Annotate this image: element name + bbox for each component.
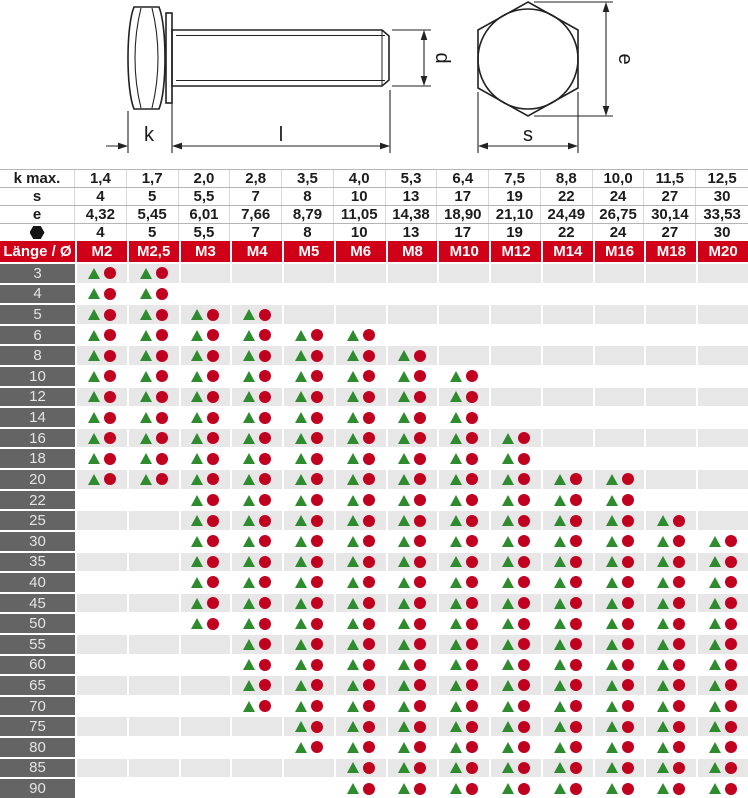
availability-cell (646, 470, 696, 489)
circle-marker-icon (466, 453, 478, 465)
circle-marker-icon (570, 556, 582, 568)
column-header: M4 (232, 241, 282, 262)
circle-marker-icon (207, 473, 219, 485)
availability-cell (543, 635, 593, 654)
triangle-marker-icon (243, 474, 255, 485)
triangle-marker-icon (502, 474, 514, 485)
circle-marker-icon (466, 432, 478, 444)
triangle-marker-icon (709, 598, 721, 609)
table-row: 8 (0, 346, 748, 365)
triangle-marker-icon (606, 701, 618, 712)
triangle-marker-icon (347, 762, 359, 773)
triangle-marker-icon (140, 391, 152, 402)
availability-cell (77, 449, 127, 468)
availability-cell (181, 326, 231, 345)
triangle-marker-icon (243, 618, 255, 629)
triangle-marker-icon (347, 371, 359, 382)
availability-cell (129, 573, 179, 592)
availability-cell (232, 779, 282, 798)
availability-cell (284, 553, 334, 572)
availability-cell (491, 491, 541, 510)
availability-cell (77, 553, 127, 572)
availability-cell (284, 326, 334, 345)
circle-marker-icon (673, 597, 685, 609)
circle-marker-icon (725, 638, 737, 650)
availability-cell (232, 532, 282, 551)
circle-marker-icon (622, 556, 634, 568)
availability-cell (388, 594, 438, 613)
circle-marker-icon (414, 391, 426, 403)
triangle-marker-icon (450, 371, 462, 382)
triangle-marker-icon (502, 618, 514, 629)
availability-cell (181, 656, 231, 675)
availability-cell (543, 697, 593, 716)
triangle-marker-icon (243, 433, 255, 444)
length-row-header: 12 (0, 388, 75, 407)
availability-cell (439, 553, 489, 572)
triangle-marker-icon (295, 701, 307, 712)
circle-marker-icon (673, 783, 685, 795)
availability-cell (181, 346, 231, 365)
triangle-marker-icon (657, 598, 669, 609)
triangle-marker-icon (450, 598, 462, 609)
circle-marker-icon (622, 473, 634, 485)
availability-cell (439, 408, 489, 427)
triangle-marker-icon (554, 536, 566, 547)
triangle-marker-icon (140, 474, 152, 485)
triangle-marker-icon (554, 783, 566, 794)
availability-cell (181, 635, 231, 654)
availability-cell (646, 738, 696, 757)
availability-cell (336, 594, 386, 613)
availability-cell (336, 264, 386, 283)
availability-cell (491, 635, 541, 654)
triangle-marker-icon (502, 680, 514, 691)
triangle-marker-icon (88, 309, 100, 320)
availability-cell (181, 388, 231, 407)
availability-cell (284, 367, 334, 386)
triangle-marker-icon (450, 680, 462, 691)
availability-cell (646, 429, 696, 448)
availability-cell (595, 429, 645, 448)
circle-marker-icon (673, 741, 685, 753)
availability-cell (284, 738, 334, 757)
availability-cell (232, 594, 282, 613)
triangle-marker-icon (709, 680, 721, 691)
triangle-marker-icon (554, 556, 566, 567)
availability-cell (181, 759, 231, 778)
circle-marker-icon (259, 597, 271, 609)
circle-marker-icon (725, 741, 737, 753)
circle-marker-icon (259, 679, 271, 691)
availability-cell (181, 532, 231, 551)
triangle-marker-icon (243, 453, 255, 464)
availability-cell (181, 779, 231, 798)
triangle-marker-icon (554, 495, 566, 506)
triangle-marker-icon (398, 515, 410, 526)
triangle-marker-icon (450, 515, 462, 526)
spec-value: 18,90 (437, 206, 489, 223)
circle-marker-icon (466, 556, 478, 568)
availability-cell (388, 367, 438, 386)
circle-marker-icon (673, 721, 685, 733)
circle-marker-icon (570, 741, 582, 753)
availability-cell (388, 511, 438, 530)
triangle-marker-icon (657, 515, 669, 526)
circle-marker-icon (363, 597, 375, 609)
table-row: 4 (0, 285, 748, 304)
triangle-marker-icon (450, 556, 462, 567)
triangle-marker-icon (450, 659, 462, 670)
triangle-marker-icon (88, 371, 100, 382)
spec-row-label (0, 224, 75, 241)
availability-cell (388, 264, 438, 283)
spec-value: 6,01 (179, 206, 231, 223)
availability-cell (232, 491, 282, 510)
table-row: 70 (0, 697, 748, 716)
availability-cell (646, 305, 696, 324)
availability-cell (181, 305, 231, 324)
triangle-marker-icon (295, 433, 307, 444)
circle-marker-icon (156, 370, 168, 382)
spec-value: 6,4 (437, 170, 489, 187)
availability-cell (77, 676, 127, 695)
triangle-marker-icon (347, 680, 359, 691)
availability-cell (388, 738, 438, 757)
spec-row-label: e (0, 206, 75, 223)
triangle-marker-icon (243, 350, 255, 361)
circle-marker-icon (414, 762, 426, 774)
triangle-marker-icon (295, 371, 307, 382)
circle-marker-icon (622, 741, 634, 753)
circle-marker-icon (104, 412, 116, 424)
availability-cell (491, 573, 541, 592)
availability-cell (439, 635, 489, 654)
circle-marker-icon (466, 783, 478, 795)
column-header: M2,5 (129, 241, 179, 262)
circle-marker-icon (518, 659, 530, 671)
triangle-marker-icon (502, 453, 514, 464)
circle-marker-icon (259, 391, 271, 403)
circle-marker-icon (466, 576, 478, 588)
spec-value: 5 (127, 224, 179, 241)
table-row: 85 (0, 759, 748, 778)
spec-value: 10 (334, 188, 386, 205)
circle-marker-icon (363, 473, 375, 485)
availability-cell (698, 573, 748, 592)
triangle-marker-icon (295, 598, 307, 609)
availability-cell (77, 656, 127, 675)
availability-cell (595, 779, 645, 798)
triangle-marker-icon (554, 515, 566, 526)
triangle-marker-icon (657, 577, 669, 588)
circle-marker-icon (414, 453, 426, 465)
triangle-marker-icon (709, 659, 721, 670)
column-header: M3 (181, 241, 231, 262)
triangle-marker-icon (243, 309, 255, 320)
triangle-marker-icon (140, 371, 152, 382)
availability-cell (336, 408, 386, 427)
circle-marker-icon (363, 679, 375, 691)
triangle-marker-icon (502, 721, 514, 732)
length-row-header: 85 (0, 759, 75, 778)
triangle-marker-icon (295, 536, 307, 547)
triangle-marker-icon (398, 433, 410, 444)
availability-cell (491, 429, 541, 448)
circle-marker-icon (259, 638, 271, 650)
circle-marker-icon (622, 515, 634, 527)
availability-cell (129, 388, 179, 407)
availability-cell (491, 717, 541, 736)
availability-cell (388, 614, 438, 633)
triangle-marker-icon (657, 659, 669, 670)
circle-marker-icon (466, 412, 478, 424)
availability-cell (181, 573, 231, 592)
table-row: 12 (0, 388, 748, 407)
circle-marker-icon (725, 535, 737, 547)
spec-value: 8,79 (282, 206, 334, 223)
availability-cell (543, 285, 593, 304)
circle-marker-icon (207, 391, 219, 403)
circle-marker-icon (466, 618, 478, 630)
circle-marker-icon (518, 432, 530, 444)
table-row: 22 (0, 491, 748, 510)
availability-cell (543, 449, 593, 468)
triangle-marker-icon (140, 412, 152, 423)
availability-cell (181, 717, 231, 736)
table-row: 6 (0, 326, 748, 345)
availability-cell (543, 759, 593, 778)
column-header: M12 (491, 241, 541, 262)
spec-section: k max.1,41,72,02,83,54,05,36,47,58,810,0… (0, 169, 748, 241)
length-row-header: 10 (0, 367, 75, 386)
circle-marker-icon (673, 700, 685, 712)
circle-marker-icon (311, 473, 323, 485)
triangle-marker-icon (450, 618, 462, 629)
triangle-marker-icon (450, 536, 462, 547)
triangle-marker-icon (398, 495, 410, 506)
circle-marker-icon (414, 597, 426, 609)
length-row-header: 5 (0, 305, 75, 324)
triangle-marker-icon (657, 762, 669, 773)
availability-cell (491, 408, 541, 427)
availability-cell (491, 553, 541, 572)
availability-cell (698, 635, 748, 654)
availability-cell (232, 511, 282, 530)
availability-cell (77, 532, 127, 551)
circle-marker-icon (311, 597, 323, 609)
availability-cell (181, 408, 231, 427)
availability-cell (698, 491, 748, 510)
availability-cell (698, 388, 748, 407)
triangle-marker-icon (606, 680, 618, 691)
triangle-marker-icon (709, 577, 721, 588)
availability-cell (595, 264, 645, 283)
availability-cell (181, 676, 231, 695)
availability-cell (698, 779, 748, 798)
triangle-marker-icon (709, 762, 721, 773)
circle-marker-icon (622, 576, 634, 588)
triangle-marker-icon (657, 721, 669, 732)
spec-value: 7 (230, 224, 282, 241)
availability-cell (284, 573, 334, 592)
circle-marker-icon (207, 329, 219, 341)
availability-cell (336, 676, 386, 695)
triangle-marker-icon (657, 742, 669, 753)
triangle-marker-icon (295, 618, 307, 629)
triangle-marker-icon (88, 288, 100, 299)
availability-cell (388, 717, 438, 736)
circle-marker-icon (363, 391, 375, 403)
length-row-header: 90 (0, 779, 75, 798)
circle-marker-icon (570, 700, 582, 712)
triangle-marker-icon (709, 556, 721, 567)
circle-marker-icon (363, 453, 375, 465)
availability-cell (336, 532, 386, 551)
length-row-header: 16 (0, 429, 75, 448)
circle-marker-icon (207, 556, 219, 568)
circle-marker-icon (363, 432, 375, 444)
availability-cell (129, 491, 179, 510)
circle-marker-icon (570, 762, 582, 774)
circle-marker-icon (414, 679, 426, 691)
spec-value: 17 (437, 188, 489, 205)
triangle-marker-icon (191, 330, 203, 341)
triangle-marker-icon (502, 556, 514, 567)
availability-cell (698, 285, 748, 304)
circle-marker-icon (104, 350, 116, 362)
availability-cell (336, 511, 386, 530)
availability-cell (646, 553, 696, 572)
triangle-marker-icon (191, 577, 203, 588)
triangle-marker-icon (657, 639, 669, 650)
circle-marker-icon (156, 309, 168, 321)
triangle-marker-icon (88, 350, 100, 361)
circle-marker-icon (104, 432, 116, 444)
circle-marker-icon (725, 783, 737, 795)
circle-marker-icon (414, 515, 426, 527)
triangle-marker-icon (191, 412, 203, 423)
spec-value: 5 (127, 188, 179, 205)
circle-marker-icon (466, 535, 478, 547)
availability-cell (698, 346, 748, 365)
availability-cell (491, 759, 541, 778)
length-row-header: 70 (0, 697, 75, 716)
circle-marker-icon (466, 494, 478, 506)
availability-cell (646, 388, 696, 407)
circle-marker-icon (259, 412, 271, 424)
availability-cell (491, 779, 541, 798)
availability-cell (646, 285, 696, 304)
length-row-header: 30 (0, 532, 75, 551)
triangle-marker-icon (502, 577, 514, 588)
table-row: 25 (0, 511, 748, 530)
availability-cell (284, 429, 334, 448)
circle-marker-icon (622, 762, 634, 774)
circle-marker-icon (156, 288, 168, 300)
availability-cell (232, 264, 282, 283)
availability-cell (543, 717, 593, 736)
availability-cell (439, 305, 489, 324)
triangle-marker-icon (657, 701, 669, 712)
triangle-marker-icon (295, 330, 307, 341)
availability-cell (232, 367, 282, 386)
availability-cell (284, 759, 334, 778)
triangle-marker-icon (398, 783, 410, 794)
circle-marker-icon (259, 659, 271, 671)
triangle-marker-icon (450, 577, 462, 588)
availability-cell (388, 573, 438, 592)
availability-cell (595, 491, 645, 510)
availability-cell (77, 326, 127, 345)
circle-marker-icon (414, 494, 426, 506)
triangle-marker-icon (398, 618, 410, 629)
availability-cell (284, 656, 334, 675)
spec-value: 3,5 (282, 170, 334, 187)
spec-value: 24,49 (541, 206, 593, 223)
triangle-marker-icon (243, 556, 255, 567)
circle-marker-icon (207, 597, 219, 609)
circle-marker-icon (207, 515, 219, 527)
triangle-marker-icon (295, 556, 307, 567)
availability-cell (543, 491, 593, 510)
availability-cell (77, 408, 127, 427)
triangle-marker-icon (502, 742, 514, 753)
triangle-marker-icon (450, 762, 462, 773)
availability-cell (595, 346, 645, 365)
circle-marker-icon (311, 535, 323, 547)
circle-marker-icon (414, 783, 426, 795)
circle-marker-icon (570, 576, 582, 588)
triangle-marker-icon (347, 412, 359, 423)
triangle-marker-icon (606, 618, 618, 629)
availability-cell (646, 717, 696, 736)
triangle-marker-icon (243, 577, 255, 588)
spec-value: 30 (696, 188, 748, 205)
length-row-header: 3 (0, 264, 75, 283)
circle-marker-icon (414, 700, 426, 712)
circle-marker-icon (725, 721, 737, 733)
triangle-marker-icon (243, 680, 255, 691)
spec-value: 13 (386, 224, 438, 241)
circle-marker-icon (414, 741, 426, 753)
table-row: 18 (0, 449, 748, 468)
circle-marker-icon (311, 370, 323, 382)
dim-label-s: s (523, 124, 533, 146)
availability-cell (129, 614, 179, 633)
availability-cell (129, 285, 179, 304)
availability-cell (129, 408, 179, 427)
circle-marker-icon (570, 597, 582, 609)
triangle-marker-icon (347, 330, 359, 341)
triangle-marker-icon (450, 639, 462, 650)
availability-cell (181, 491, 231, 510)
size-header-row: Länge / Ø M2M2,5M3M4M5M6M8M10M12M14M16M1… (0, 241, 748, 262)
triangle-marker-icon (657, 536, 669, 547)
availability-cell (439, 449, 489, 468)
circle-marker-icon (622, 494, 634, 506)
circle-marker-icon (414, 535, 426, 547)
triangle-marker-icon (398, 412, 410, 423)
availability-cell (595, 676, 645, 695)
availability-cell (77, 573, 127, 592)
spec-value: 1,4 (75, 170, 127, 187)
circle-marker-icon (311, 329, 323, 341)
triangle-marker-icon (191, 371, 203, 382)
triangle-marker-icon (502, 783, 514, 794)
column-header: M18 (646, 241, 696, 262)
availability-cell (439, 594, 489, 613)
